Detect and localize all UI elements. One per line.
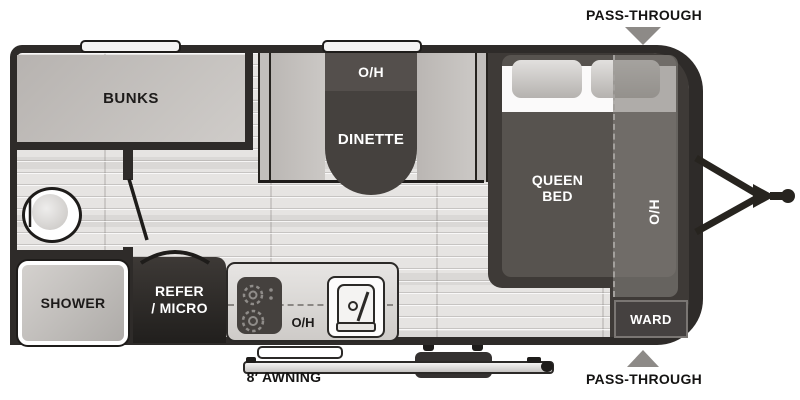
wardrobe-label: WARD [630,312,672,327]
awning-mount-icon [527,357,541,363]
refer-label-line1: REFER [151,283,208,300]
wardrobe: WARD [614,300,688,338]
dinette-bench-right [417,53,475,182]
pass-through-top-arrow-icon [625,27,661,45]
refrigerator-microwave: REFER / MICRO [133,257,226,343]
dinette-bench-left [267,53,325,182]
awning-label: 8′ AWNING [238,369,330,385]
toilet-bowl-icon [32,194,68,230]
bedroom-overhead-text: O/H [646,199,662,225]
hitch-bar-icon [696,198,757,232]
dinette-label: DINETTE [325,131,417,148]
queen-bed-label: QUEEN BED [502,172,613,204]
pass-through-bottom-arrow-icon [627,350,659,367]
queen-bed-label-line2: BED [502,188,613,204]
bedroom-overhead-label: O/H [636,188,672,236]
refer-label-line2: / MICRO [151,300,208,317]
hitch-bar-icon [696,158,757,194]
hitch-coupler-icon [770,192,784,200]
sink-icon [327,276,385,338]
shower: SHOWER [18,261,128,345]
awning-mount-icon [246,357,256,363]
hitch-tip-icon [753,184,775,208]
pass-through-bottom-label: PASS-THROUGH [556,371,732,387]
roof-vent-icon [322,40,422,53]
refrigerator-label: REFER / MICRO [151,283,208,317]
dinette-overhead: O/H [325,53,417,91]
hitch-ball-icon [781,189,795,203]
shower-label: SHOWER [41,295,106,311]
dinette-table: O/H DINETTE [325,53,417,195]
bunks-label: BUNKS [103,90,159,107]
awning-end-icon [541,361,553,372]
queen-bed-label-line1: QUEEN [502,172,613,188]
dinette-bench-backrest [475,53,488,182]
entry-door-hinge [423,345,434,351]
dinette-overhead-label: O/H [358,64,384,80]
kitchen-overhead-label: O/H [284,315,322,330]
bunks-area: BUNKS [17,55,245,142]
bunks-wall [245,53,253,150]
bathroom-door-jamb [123,150,133,180]
sink-faucet-base-icon [336,322,376,332]
stove-icon [237,277,282,334]
roof-vent-icon [80,40,181,53]
pass-through-top-label: PASS-THROUGH [556,7,732,23]
grab-handle [257,346,343,359]
dinette-bench-backrest [258,53,271,182]
entry-door-hinge [472,345,483,351]
pillow-icon [512,60,582,98]
bathroom-wall [10,142,253,150]
floorplan-canvas: BUNKS O/H DINETTE QUEEN BED O/H WARD SHO… [0,0,800,400]
bedroom-overhead-cabinet [613,55,678,297]
